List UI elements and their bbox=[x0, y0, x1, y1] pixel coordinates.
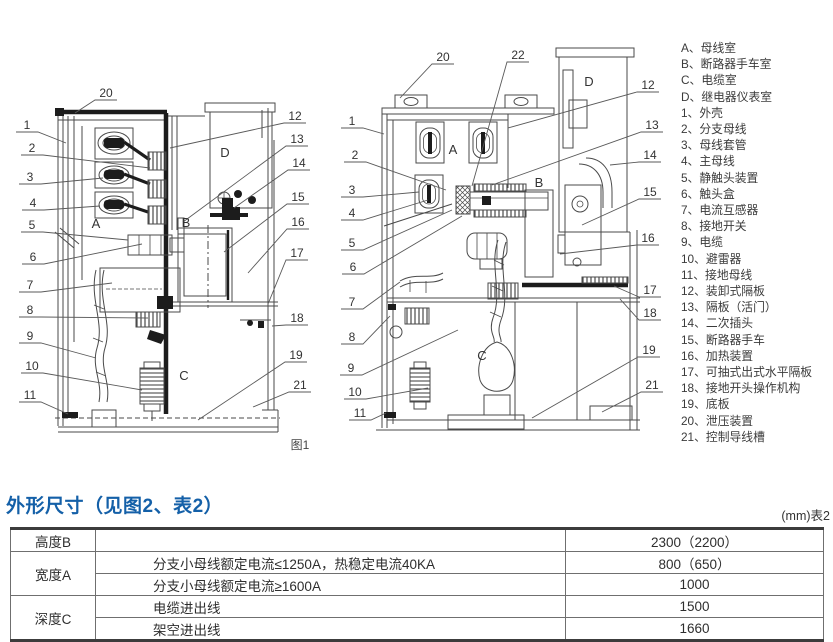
figure1-right-diagram: 20221234567891011121314151617181921 ABDC bbox=[330, 40, 670, 450]
callout-leader-11 bbox=[19, 402, 68, 414]
callout-label-2: 2 bbox=[29, 141, 36, 155]
callout-leader-1 bbox=[341, 128, 384, 134]
legend-item: 18、接地开头操作机构 bbox=[681, 380, 831, 396]
callout-leader-21 bbox=[253, 392, 311, 407]
callout-label-14: 14 bbox=[292, 156, 306, 170]
table-row: 架空进出线 1660 bbox=[11, 618, 824, 641]
dim-label: 高度B bbox=[11, 529, 96, 552]
dim-value: 800（650） bbox=[566, 552, 824, 574]
legend-item: 19、底板 bbox=[681, 396, 831, 412]
legend-item: 5、静触头装置 bbox=[681, 170, 831, 186]
legend-item: 15、断路器手车 bbox=[681, 332, 831, 348]
legend-item: A、母线室 bbox=[681, 40, 831, 56]
parts-legend: A、母线室B、断路器手车室C、电缆室D、继电器仪表室1、外壳2、分支母线3、母线… bbox=[681, 40, 831, 445]
callout-label-5: 5 bbox=[29, 218, 36, 232]
room-letter-B: B bbox=[535, 175, 544, 190]
callout-leader-15 bbox=[582, 199, 661, 225]
callout-label-10: 10 bbox=[348, 385, 362, 399]
callout-leader-19 bbox=[532, 357, 660, 418]
legend-item: B、断路器手车室 bbox=[681, 56, 831, 72]
callout-label-8: 8 bbox=[349, 330, 356, 344]
callout-label-17: 17 bbox=[643, 283, 657, 297]
callout-label-19: 19 bbox=[289, 348, 303, 362]
callout-label-15: 15 bbox=[291, 190, 305, 204]
room-letter-C: C bbox=[477, 348, 486, 363]
callout-label-15: 15 bbox=[643, 185, 657, 199]
callout-leader-18 bbox=[272, 325, 308, 326]
callout-leader-22 bbox=[472, 62, 529, 186]
cable-room-C bbox=[62, 268, 278, 421]
legend-item: 4、主母线 bbox=[681, 153, 831, 169]
dimensions-table: 高度B 2300（2200） 宽度A 分支小母线额定电流≤1250A，热稳定电流… bbox=[10, 527, 824, 642]
instrument-room-D bbox=[205, 103, 275, 208]
callout-leader-12 bbox=[508, 92, 659, 128]
legend-item: 14、二次插头 bbox=[681, 315, 831, 331]
callout-label-14: 14 bbox=[643, 148, 657, 162]
table-row: 深度C 电缆进出线 1500 bbox=[11, 596, 824, 618]
callout-label-22: 22 bbox=[511, 48, 525, 62]
legend-item: 13、隔板（活门） bbox=[681, 299, 831, 315]
room-letter-D: D bbox=[220, 145, 229, 160]
callout-label-1: 1 bbox=[24, 118, 31, 132]
legend-item: 6、触头盒 bbox=[681, 186, 831, 202]
callout-label-6: 6 bbox=[30, 250, 37, 264]
legend-item: 16、加热装置 bbox=[681, 348, 831, 364]
callout-label-3: 3 bbox=[349, 183, 356, 197]
table-row: 分支小母线额定电流≥1600A 1000 bbox=[11, 574, 824, 596]
callout-label-9: 9 bbox=[27, 329, 34, 343]
callout-label-12: 12 bbox=[288, 109, 302, 123]
dim-value: 1660 bbox=[566, 618, 824, 641]
figure-caption: 图1 bbox=[260, 436, 340, 453]
legend-item: 1、外壳 bbox=[681, 105, 831, 121]
callout-label-19: 19 bbox=[642, 343, 656, 357]
legend-item: 12、装卸式隔板 bbox=[681, 283, 831, 299]
callout-label-13: 13 bbox=[290, 132, 304, 146]
callout-leader-16 bbox=[560, 245, 659, 254]
instrument-room-D bbox=[556, 48, 634, 232]
callout-leader-5 bbox=[341, 210, 452, 250]
table-row: 宽度A 分支小母线额定电流≤1250A，热稳定电流40KA 800（650） bbox=[11, 552, 824, 574]
callout-leader-14 bbox=[610, 162, 661, 165]
callout-leader-6 bbox=[342, 216, 462, 274]
callout-leader-13 bbox=[492, 132, 663, 185]
busbar-bushings bbox=[95, 128, 166, 224]
table-row: 高度B 2300（2200） bbox=[11, 529, 824, 552]
callout-layer: 20221234567891011121314151617181921 bbox=[340, 48, 663, 420]
callout-label-4: 4 bbox=[349, 206, 356, 220]
cable-room-C bbox=[384, 233, 632, 429]
dim-label: 宽度A bbox=[11, 552, 96, 596]
callout-label-4: 4 bbox=[30, 196, 37, 210]
callout-label-21: 21 bbox=[293, 378, 307, 392]
legend-item: C、电缆室 bbox=[681, 72, 831, 88]
callout-label-9: 9 bbox=[348, 361, 355, 375]
dim-condition: 分支小母线额定电流≤1250A，热稳定电流40KA bbox=[96, 552, 566, 574]
callout-label-10: 10 bbox=[25, 359, 39, 373]
figure1-left-diagram: 201234567891011121314151617181921 ABDC bbox=[0, 80, 330, 440]
legend-item: 7、电流互感器 bbox=[681, 202, 831, 218]
legend-item: 9、电缆 bbox=[681, 234, 831, 250]
legend-item: 8、接地开关 bbox=[681, 218, 831, 234]
legend-item: 17、可抽式出式水平隔板 bbox=[681, 364, 831, 380]
dim-condition: 电缆进出线 bbox=[96, 596, 566, 618]
dimensions-table-wrap: 高度B 2300（2200） 宽度A 分支小母线额定电流≤1250A，热稳定电流… bbox=[10, 527, 824, 642]
callout-label-12: 12 bbox=[641, 78, 655, 92]
dim-label: 深度C bbox=[11, 596, 96, 641]
room-letter-A: A bbox=[92, 216, 101, 231]
callout-label-18: 18 bbox=[290, 311, 304, 325]
callout-leader-13 bbox=[183, 146, 308, 222]
callout-label-7: 7 bbox=[27, 278, 34, 292]
callout-label-16: 16 bbox=[291, 215, 305, 229]
callout-leader-12 bbox=[170, 123, 306, 148]
callout-label-7: 7 bbox=[349, 295, 356, 309]
callout-label-2: 2 bbox=[352, 148, 359, 162]
legend-item: 2、分支母线 bbox=[681, 121, 831, 137]
callout-label-20: 20 bbox=[436, 50, 450, 64]
dim-condition: 架空进出线 bbox=[96, 618, 566, 641]
callout-label-11: 11 bbox=[24, 388, 37, 402]
callout-label-21: 21 bbox=[645, 378, 659, 392]
callout-label-11: 11 bbox=[354, 406, 367, 420]
section-title: 外形尺寸（见图2、表2） bbox=[6, 491, 223, 518]
legend-item: D、继电器仪表室 bbox=[681, 89, 831, 105]
legend-item: 21、控制导线槽 bbox=[681, 429, 831, 445]
callout-label-18: 18 bbox=[643, 306, 657, 320]
unit-note: (mm)表2 bbox=[781, 505, 830, 524]
dim-value: 2300（2200） bbox=[566, 529, 824, 552]
room-letter-D: D bbox=[584, 74, 593, 89]
callout-label-17: 17 bbox=[290, 246, 304, 260]
dim-value: 1500 bbox=[566, 596, 824, 618]
legend-item: 3、母线套管 bbox=[681, 137, 831, 153]
room-letter-C: C bbox=[179, 368, 188, 383]
dim-value: 1000 bbox=[566, 574, 824, 596]
callout-leader-20 bbox=[400, 64, 454, 98]
room-letter-B: B bbox=[182, 215, 191, 230]
legend-item: 11、接地母线 bbox=[681, 267, 831, 283]
callout-label-1: 1 bbox=[349, 114, 356, 128]
callout-label-5: 5 bbox=[349, 236, 356, 250]
legend-item: 10、避雷器 bbox=[681, 251, 831, 267]
dim-condition: 分支小母线额定电流≥1600A bbox=[96, 574, 566, 596]
callout-leader-10 bbox=[21, 373, 142, 390]
callout-label-16: 16 bbox=[641, 231, 655, 245]
callout-label-3: 3 bbox=[27, 170, 34, 184]
room-letter-A: A bbox=[449, 142, 458, 157]
legend-item: 20、泄压装置 bbox=[681, 413, 831, 429]
breaker-room-B bbox=[387, 158, 640, 302]
callout-label-8: 8 bbox=[27, 303, 34, 317]
callout-label-6: 6 bbox=[350, 260, 357, 274]
room-letter-layer: ABDC bbox=[449, 74, 594, 363]
callout-leader-19 bbox=[198, 362, 307, 420]
callout-label-20: 20 bbox=[99, 86, 113, 100]
callout-leader-8 bbox=[19, 317, 148, 318]
dim-condition bbox=[96, 529, 566, 552]
callout-label-13: 13 bbox=[645, 118, 659, 132]
catalog-page: 201234567891011121314151617181921 ABDC bbox=[0, 0, 833, 642]
